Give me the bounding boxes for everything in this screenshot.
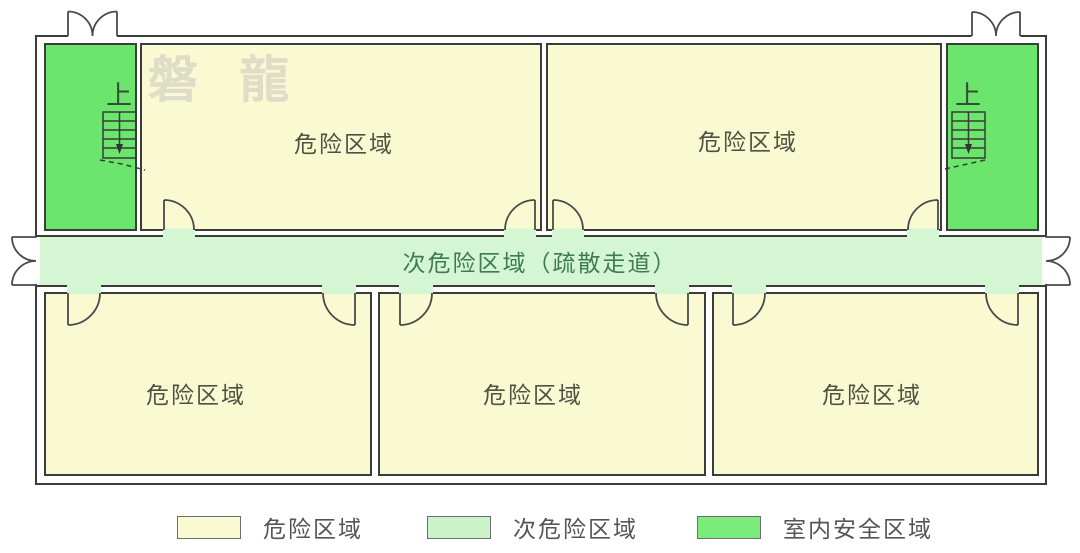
legend-label-hazard: 危险区域 xyxy=(263,510,363,544)
opening xyxy=(985,285,1019,294)
room-label-bottom-middle: 危险区域 xyxy=(483,376,583,410)
legend-item-secondary: 次危险区域 xyxy=(427,510,638,544)
stairwell-left-area xyxy=(45,44,136,230)
stairwell-right-area xyxy=(947,44,1038,230)
legend-item-safe: 室内安全区域 xyxy=(697,510,933,544)
legend-item-hazard: 危险区域 xyxy=(177,510,363,544)
opening xyxy=(655,285,689,294)
stair-up-label-right: 上 xyxy=(955,81,981,111)
opening xyxy=(552,229,584,238)
legend-swatch-secondary xyxy=(427,516,491,539)
legend-swatch-safe xyxy=(697,516,761,539)
room-label-bottom-right: 危险区域 xyxy=(822,376,922,410)
room-label-bottom-left: 危险区域 xyxy=(146,376,246,410)
opening xyxy=(732,285,766,294)
legend-label-safe: 室内安全区域 xyxy=(783,510,933,544)
opening xyxy=(163,229,195,238)
opening xyxy=(67,285,101,294)
opening xyxy=(399,285,433,294)
double-door-corridor-right xyxy=(1046,237,1070,285)
legend: 危险区域 次危险区域 室内安全区域 xyxy=(0,506,1080,540)
legend-swatch-hazard xyxy=(177,516,241,539)
double-door-corridor-left xyxy=(12,237,36,285)
double-door-top-left xyxy=(68,12,117,37)
room-label-top-left: 危险区域 xyxy=(294,125,394,159)
floor-plan: 上 上 磐 龍 危险区域 危险区域 危险区域 危险区域 危险区域 次危险区域（疏… xyxy=(0,0,1080,553)
opening xyxy=(504,229,536,238)
double-door-top-right xyxy=(972,12,1020,36)
corridor-label: 次危险区域（疏散走道） xyxy=(403,244,678,278)
stair-up-label-left: 上 xyxy=(106,81,132,111)
legend-label-secondary: 次危险区域 xyxy=(513,510,638,544)
opening xyxy=(907,229,939,238)
room-label-top-right: 危险区域 xyxy=(698,123,798,157)
opening xyxy=(322,285,356,294)
watermark-text: 磐 龍 xyxy=(148,40,301,112)
